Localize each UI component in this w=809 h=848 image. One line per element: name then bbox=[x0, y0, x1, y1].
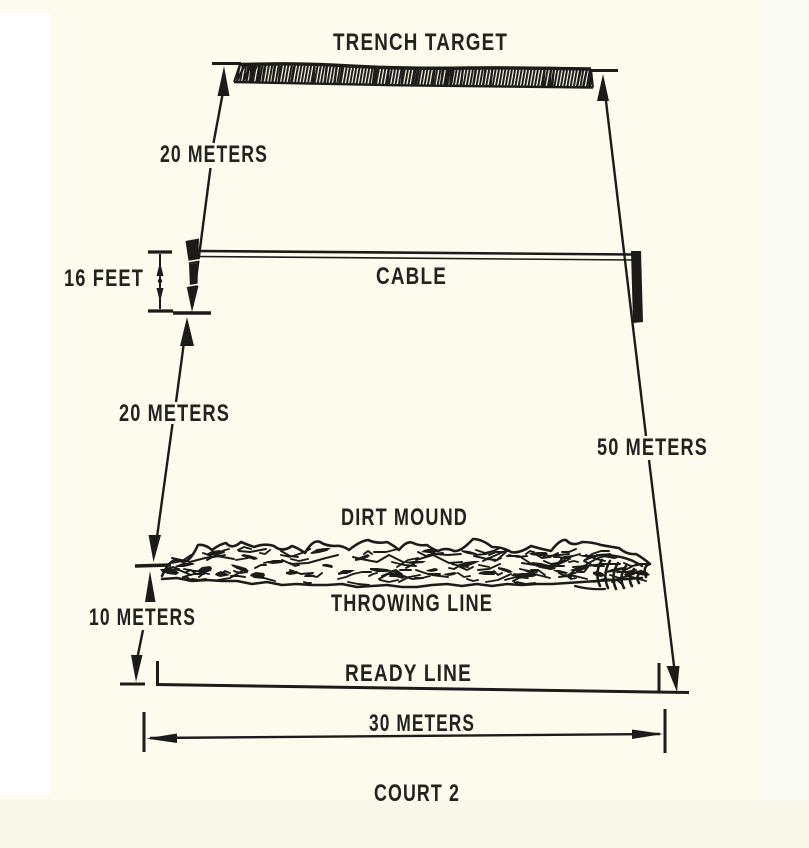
svg-text:20 METERS: 20 METERS bbox=[119, 400, 230, 427]
svg-text:10 METERS: 10 METERS bbox=[89, 604, 196, 631]
svg-text:CABLE: CABLE bbox=[376, 263, 447, 290]
svg-text:30 METERS: 30 METERS bbox=[369, 710, 475, 737]
svg-text:READY LINE: READY LINE bbox=[345, 660, 472, 687]
svg-text:TRENCH TARGET: TRENCH TARGET bbox=[333, 29, 508, 56]
svg-text:COURT 2: COURT 2 bbox=[374, 780, 460, 807]
svg-text:DIRT MOUND: DIRT MOUND bbox=[341, 504, 468, 531]
svg-text:THROWING LINE: THROWING LINE bbox=[331, 590, 493, 617]
svg-text:20 METERS: 20 METERS bbox=[160, 141, 268, 168]
svg-text:50 METERS: 50 METERS bbox=[597, 434, 708, 461]
svg-text:16 FEET: 16 FEET bbox=[64, 265, 144, 292]
